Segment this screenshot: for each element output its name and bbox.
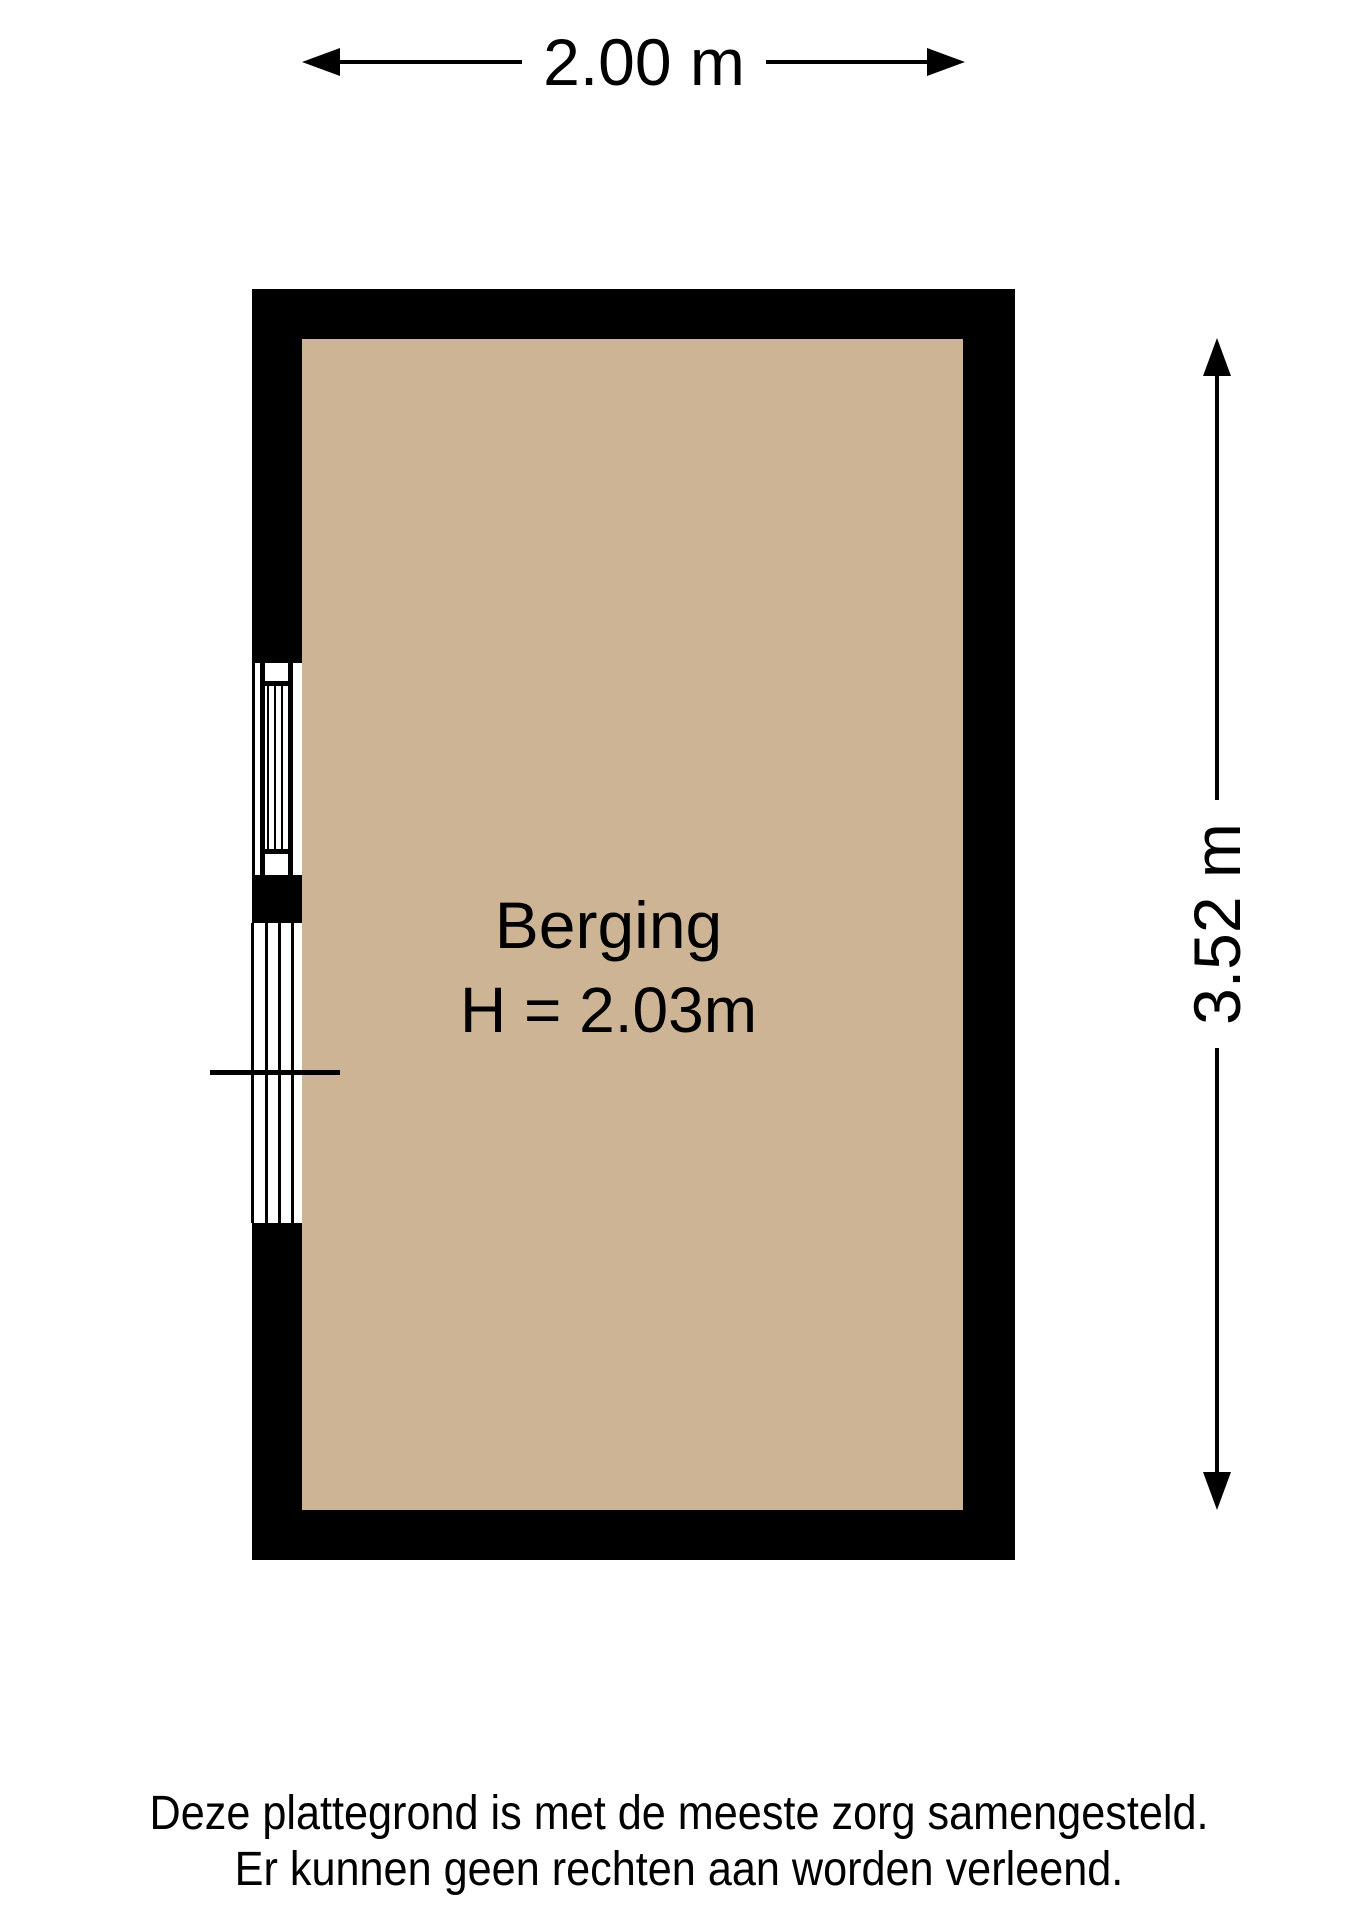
footer-disclaimer: Deze plattegrond is met de meeste zorg s…	[68, 1786, 1290, 1898]
window-glazing-line	[267, 686, 269, 849]
dimension-arrowhead-left-icon	[302, 48, 340, 76]
window-glazing-line	[281, 686, 283, 849]
dimension-arrowhead-right-icon	[927, 48, 965, 76]
dimension-arrowhead-down-icon	[1203, 1472, 1231, 1510]
window-frame-top-divider	[260, 681, 293, 686]
window-outer-face-line	[252, 663, 255, 875]
window-frame-left	[260, 663, 265, 875]
window-glazing-line	[274, 686, 276, 849]
width-dimension-line-right	[766, 60, 927, 64]
door-threshold-line	[210, 1070, 340, 1075]
room-name-label: Berging	[277, 888, 940, 962]
window-frame-bottom-divider	[260, 849, 293, 854]
height-dimension-line-top	[1215, 376, 1219, 800]
window-frame-right	[288, 663, 293, 875]
height-dimension-label: 3.52 m	[1182, 804, 1252, 1044]
width-dimension-label: 2.00 m	[522, 26, 766, 98]
dimension-arrowhead-up-icon	[1203, 338, 1231, 376]
height-dimension-line-bottom	[1215, 1048, 1219, 1472]
floorplan-canvas: 2.00 m 3.52 m Berging H = 2.03m	[0, 0, 1358, 1920]
ceiling-height-label: H = 2.03m	[277, 973, 940, 1047]
width-dimension-line-left	[340, 60, 522, 64]
footer-line-1: Deze plattegrond is met de meeste zorg s…	[68, 1786, 1290, 1842]
footer-line-2: Er kunnen geen rechten aan worden verlee…	[68, 1842, 1290, 1898]
